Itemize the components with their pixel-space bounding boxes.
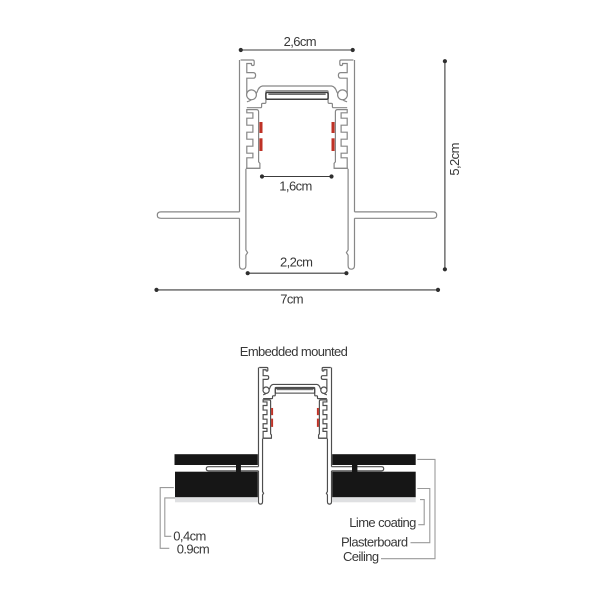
- svg-text:Plasterboard: Plasterboard: [341, 535, 408, 550]
- svg-text:7cm: 7cm: [280, 292, 303, 307]
- svg-text:0.9cm: 0.9cm: [177, 541, 209, 556]
- svg-text:Ceiling: Ceiling: [343, 549, 379, 564]
- svg-text:5,2cm: 5,2cm: [447, 143, 462, 175]
- svg-text:Lime coating: Lime coating: [349, 515, 416, 530]
- svg-text:Embedded mounted: Embedded mounted: [240, 344, 348, 359]
- svg-text:2,6cm: 2,6cm: [284, 34, 316, 49]
- svg-text:2,2cm: 2,2cm: [280, 255, 312, 270]
- svg-text:1,6cm: 1,6cm: [279, 179, 311, 194]
